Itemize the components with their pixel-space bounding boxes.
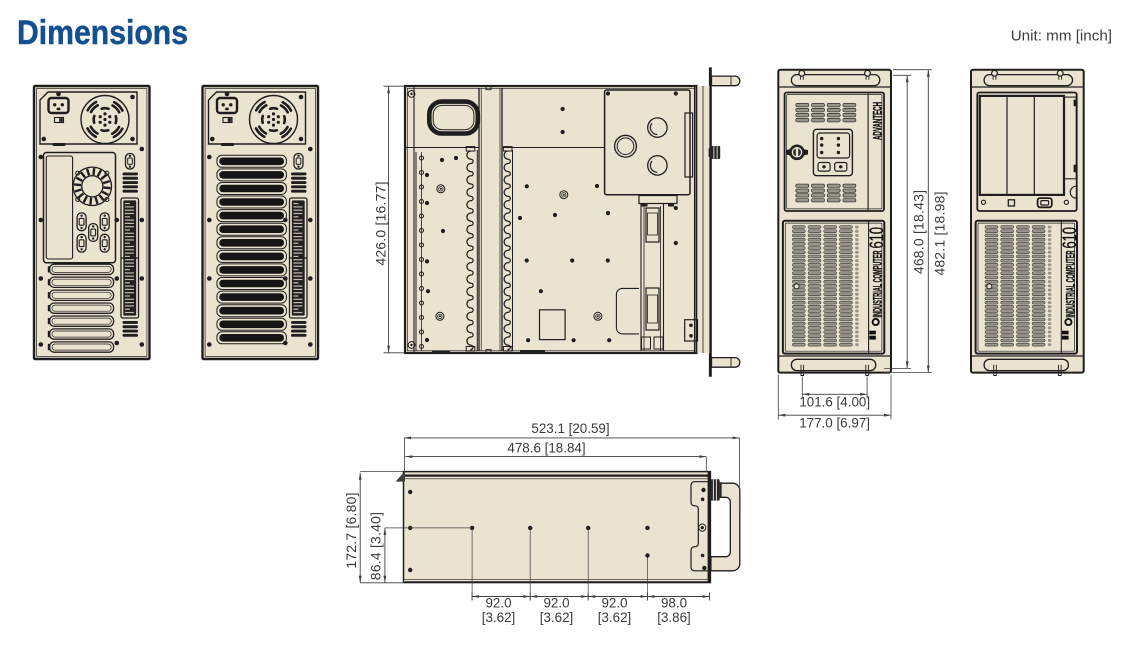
- svg-text:177.0 [6.97]: 177.0 [6.97]: [799, 416, 870, 431]
- svg-text:Dimensions: Dimensions: [17, 14, 188, 52]
- svg-text:92.0: 92.0: [543, 596, 569, 611]
- svg-text:[3.62]: [3.62]: [540, 610, 574, 625]
- svg-text:610: 610: [867, 227, 888, 249]
- svg-text:[3.86]: [3.86]: [657, 610, 691, 625]
- svg-text:[3.62]: [3.62]: [482, 610, 516, 625]
- svg-text:[3.62]: [3.62]: [598, 610, 632, 625]
- svg-text:101.6 [4.00]: 101.6 [4.00]: [799, 394, 870, 409]
- svg-text:INDUSTRIAL COMPUTER: INDUSTRIAL COMPUTER: [873, 250, 885, 317]
- svg-text:172.7 [6.80]: 172.7 [6.80]: [343, 492, 359, 568]
- svg-text:98.0: 98.0: [661, 596, 687, 611]
- svg-text:610: 610: [1060, 227, 1081, 249]
- svg-text:468.0 [18.43]: 468.0 [18.43]: [911, 190, 927, 274]
- svg-text:523.1 [20.59]: 523.1 [20.59]: [531, 421, 609, 436]
- svg-text:482.1 [18.98]: 482.1 [18.98]: [932, 191, 948, 275]
- svg-text:426.0 [16.77]: 426.0 [16.77]: [373, 181, 389, 265]
- svg-text:86.4 [3.40]: 86.4 [3.40]: [367, 512, 383, 580]
- svg-text:ADVANTECH: ADVANTECH: [872, 102, 884, 140]
- svg-text:Unit: mm [inch]: Unit: mm [inch]: [1011, 28, 1112, 45]
- svg-text:478.6 [18.84]: 478.6 [18.84]: [507, 440, 585, 455]
- svg-text:92.0: 92.0: [485, 596, 511, 611]
- svg-text:92.0: 92.0: [601, 596, 627, 611]
- svg-text:INDUSTRIAL COMPUTER: INDUSTRIAL COMPUTER: [1065, 250, 1077, 317]
